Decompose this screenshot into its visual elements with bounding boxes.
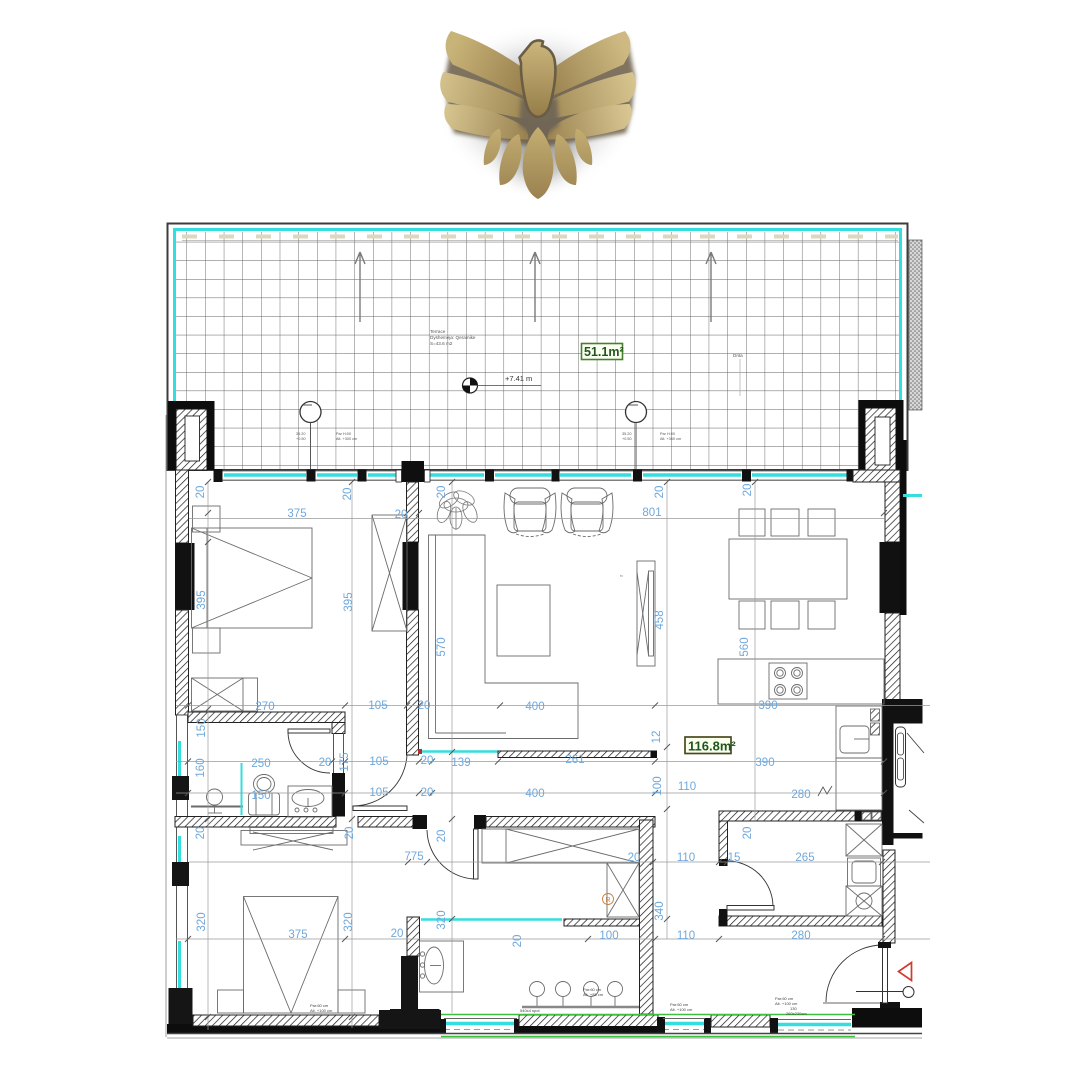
- svg-text:Terrace: Terrace: [430, 329, 446, 334]
- svg-text:20: 20: [395, 509, 408, 521]
- svg-text:35.20: 35.20: [296, 432, 306, 436]
- svg-text:20: 20: [742, 827, 754, 840]
- svg-text:540x4 spot: 540x4 spot: [520, 1008, 540, 1013]
- svg-text:105: 105: [369, 787, 388, 799]
- svg-text:Par H:00: Par H:00: [660, 432, 675, 436]
- svg-text:458: 458: [654, 610, 666, 629]
- svg-text:139: 139: [451, 757, 470, 769]
- svg-text:20: 20: [391, 928, 404, 940]
- svg-text:Alt. +100 cm: Alt. +100 cm: [310, 1008, 333, 1013]
- svg-text:390: 390: [755, 757, 774, 769]
- svg-text:280: 280: [791, 930, 810, 942]
- svg-text:20: 20: [421, 787, 434, 799]
- svg-text:Alt. +300 cm: Alt. +300 cm: [336, 437, 357, 441]
- svg-text:20: 20: [195, 486, 207, 499]
- svg-text:20: 20: [418, 700, 431, 712]
- svg-text:Alt. +100 cm: Alt. +100 cm: [670, 1007, 693, 1012]
- svg-text:160: 160: [195, 758, 207, 777]
- svg-text:400: 400: [525, 701, 544, 713]
- svg-text:400: 400: [525, 788, 544, 800]
- svg-text:250: 250: [251, 758, 270, 770]
- svg-text:270: 270: [255, 701, 274, 713]
- svg-text:20: 20: [654, 486, 666, 499]
- svg-text:S=43.6 m2: S=43.6 m2: [430, 341, 453, 346]
- svg-text:110: 110: [677, 930, 695, 942]
- svg-text:150: 150: [251, 790, 270, 802]
- svg-text:340: 340: [654, 901, 666, 920]
- svg-text:20: 20: [436, 830, 448, 843]
- svg-text:20: 20: [421, 755, 434, 767]
- svg-text:801: 801: [642, 507, 661, 519]
- svg-text:320: 320: [343, 912, 355, 931]
- svg-text:35.20: 35.20: [622, 432, 632, 436]
- svg-text:395: 395: [196, 590, 208, 609]
- svg-text:175: 175: [339, 752, 351, 771]
- svg-text:20: 20: [628, 852, 641, 864]
- svg-text:110: 110: [677, 852, 695, 864]
- svg-text:265: 265: [795, 852, 814, 864]
- svg-text:395: 395: [343, 592, 355, 611]
- svg-text:560: 560: [739, 637, 751, 656]
- svg-text:261: 261: [565, 754, 584, 766]
- svg-text:20: 20: [742, 484, 754, 497]
- svg-text:280: 280: [791, 789, 810, 801]
- svg-text:Alt. +300 cm: Alt. +300 cm: [660, 437, 681, 441]
- svg-text:20: 20: [344, 827, 356, 840]
- svg-text:100: 100: [652, 776, 664, 795]
- svg-text:105: 105: [368, 700, 387, 712]
- svg-text:20: 20: [342, 488, 354, 501]
- svg-text:150: 150: [196, 718, 208, 737]
- svg-text:+0.50: +0.50: [296, 437, 306, 441]
- svg-text:100: 100: [599, 930, 618, 942]
- svg-text:+7.41 m: +7.41 m: [505, 374, 532, 383]
- svg-text:20: 20: [319, 757, 332, 769]
- svg-text:Dyshemeja: Qeramike: Dyshemeja: Qeramike: [430, 335, 476, 340]
- svg-text:15: 15: [728, 852, 741, 864]
- svg-text:375: 375: [287, 508, 306, 520]
- svg-text:R: R: [606, 897, 611, 904]
- svg-text:390: 390: [758, 700, 777, 712]
- svg-text:Alt. +85 cm: Alt. +85 cm: [583, 992, 604, 997]
- svg-text:Par H:00: Par H:00: [336, 432, 351, 436]
- svg-text:20: 20: [512, 935, 524, 948]
- svg-text:375: 375: [288, 929, 307, 941]
- svg-text:Drita: Drita: [733, 353, 743, 358]
- svg-text:+0.50: +0.50: [622, 437, 632, 441]
- svg-text:775: 775: [404, 851, 423, 863]
- svg-text:tv: tv: [620, 573, 623, 578]
- svg-text:20: 20: [195, 827, 207, 840]
- svg-text:116.8m²: 116.8m²: [688, 739, 736, 754]
- svg-text:570: 570: [436, 637, 448, 656]
- svg-text:51.1m²: 51.1m²: [584, 345, 624, 359]
- svg-text:320: 320: [436, 910, 448, 929]
- svg-text:20: 20: [436, 486, 448, 499]
- svg-text:105: 105: [369, 756, 388, 768]
- svg-text:110: 110: [678, 781, 696, 793]
- svg-text:320: 320: [196, 912, 208, 931]
- svg-text:12: 12: [651, 731, 663, 744]
- svg-text:260x230cm: 260x230cm: [786, 1011, 807, 1016]
